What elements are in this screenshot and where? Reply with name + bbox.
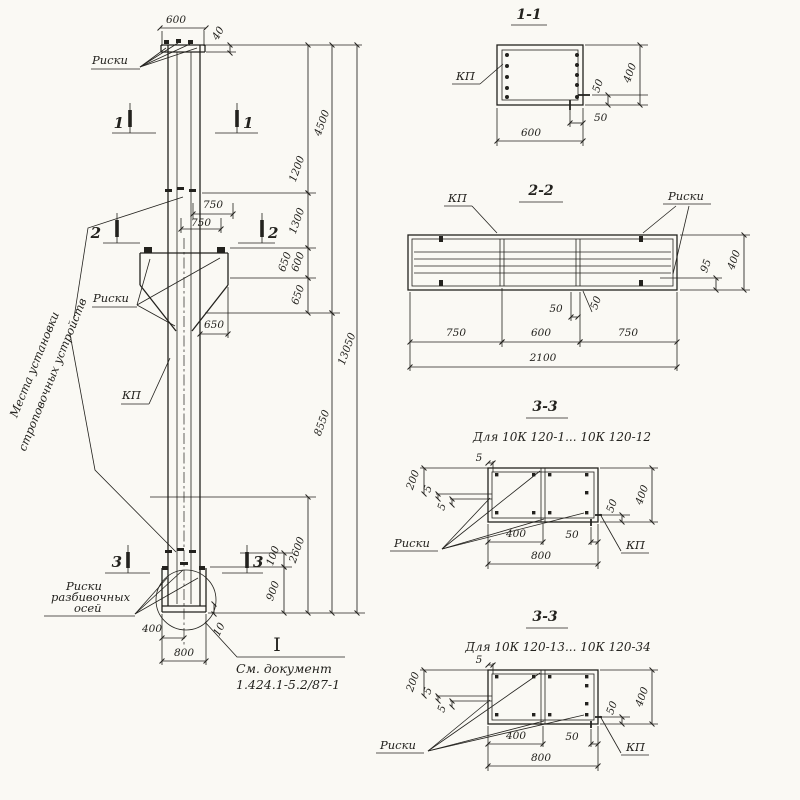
- riski-label: Риски: [379, 738, 416, 752]
- dim-off-b50: 50: [565, 731, 579, 743]
- section-1-1: 1-1 КП 50 400: [452, 7, 648, 146]
- axis-note-line3: осей: [74, 601, 102, 615]
- section-3-3b-title: 3-3: [532, 609, 558, 625]
- dim-5b: 5: [435, 501, 449, 512]
- dim-seg-650b: 650: [289, 283, 307, 306]
- dim-tip-900: 900: [264, 579, 282, 602]
- dim-seg-1200: 1200: [287, 154, 308, 184]
- section-1-1-outline: [497, 45, 583, 105]
- section-3-3-b: 3-3 Для 10К 120-13... 10К 120-34 5 200: [376, 609, 658, 771]
- dim-off-50: 50: [604, 699, 620, 716]
- dim-base-half: 400: [141, 623, 162, 635]
- dim-5-top: 5: [476, 654, 483, 666]
- kp-label: КП: [625, 740, 646, 754]
- section-3-3b-kp-note: КП: [600, 716, 649, 755]
- section-1-1-kp-note: КП: [452, 64, 503, 84]
- dim-width: 800: [531, 550, 551, 562]
- kp-label: КП: [121, 388, 142, 402]
- section-3-3a-riski-note: Риски: [390, 471, 584, 551]
- kp-note: КП: [121, 358, 170, 404]
- dim-width: 800: [531, 752, 551, 764]
- dim-off-b50: 50: [565, 529, 579, 541]
- dim-tip-100: 100: [264, 544, 282, 567]
- console-dim: 650: [200, 287, 228, 338]
- dim-5b: 5: [435, 703, 449, 714]
- dim-5-top: 5: [476, 452, 483, 464]
- section-2-2-kp-note: КП: [444, 191, 497, 233]
- dim-head-offset: 40: [209, 24, 227, 43]
- riski-label: Риски: [667, 189, 704, 203]
- dim-lower-total: 8550: [312, 408, 333, 438]
- section-3-3a-reinforcement: [436, 468, 602, 526]
- sling-dims: 750 750: [181, 199, 233, 233]
- section-2-2-reinforcement: [414, 236, 671, 286]
- dim-5a: 5: [421, 483, 435, 494]
- section-2-2-outline: [408, 235, 677, 290]
- column-outline: [161, 39, 205, 646]
- dim-sling-b: 750: [191, 217, 211, 229]
- section-mark-3-label: 3: [253, 553, 263, 571]
- dim-height: 400: [633, 483, 652, 507]
- drawing-sheet: 1 1 2 2 3 3: [0, 0, 800, 800]
- dim-off-50: 50: [604, 497, 620, 514]
- dim-console-reach: 650: [204, 319, 224, 331]
- dim-height: 400: [621, 61, 640, 85]
- dim-height: 400: [633, 685, 652, 709]
- section-3-3b-reinforcement: [436, 670, 602, 728]
- section-3-3a-dims: 5 200 5 5 50 400 400 50 800: [404, 452, 658, 569]
- kp-label: КП: [625, 538, 646, 552]
- dim-base-width: 800: [174, 647, 194, 659]
- dim-upper-total: 4500: [312, 108, 333, 138]
- section-3-3b-subtitle: Для 10К 120-13... 10К 120-34: [464, 640, 651, 654]
- dim-seg-750b: 750: [618, 327, 638, 339]
- dim-head-width: 600: [166, 14, 186, 26]
- section-3-3a-kp-note: КП: [600, 514, 649, 553]
- section-1-1-title: 1-1: [516, 7, 541, 23]
- dim-seg-1300: 1300: [287, 206, 308, 236]
- kp-label: КП: [455, 69, 476, 83]
- section-mark-1-label: 1: [114, 114, 124, 132]
- doc-reference: I См. документ 1.424.1-5.2/87-1: [205, 622, 345, 692]
- section-2-2-title: 2-2: [527, 183, 554, 199]
- dim-overall-length: 13050: [336, 331, 359, 367]
- section-3-3a-title: 3-3: [532, 399, 558, 415]
- dim-edge-95: 95: [698, 257, 714, 274]
- section-mark-1-label: 1: [243, 114, 253, 132]
- section-mark-1: 1 1: [112, 103, 258, 133]
- dim-off-b: 50: [588, 294, 604, 311]
- section-3-3b-dims: 5 200 5 5 50 400 400 50 800: [404, 654, 658, 771]
- kp-label: КП: [447, 191, 468, 205]
- section-1-1-rebar: [505, 53, 579, 99]
- base-plate: [156, 562, 216, 630]
- riski-top-label: Риски: [91, 53, 128, 67]
- dim-seg-600: 600: [531, 327, 551, 339]
- riski-label: Риски: [393, 536, 430, 550]
- dim-seg-600: 600: [289, 250, 307, 273]
- section-mark-3-label: 3: [112, 553, 122, 571]
- section-2-2: 2-2 КП Риски: [408, 183, 750, 371]
- dim-200: 200: [404, 468, 423, 492]
- engineering-drawing: 1 1 2 2 3 3: [0, 0, 800, 800]
- dim-height: 400: [725, 248, 744, 272]
- doc-note-line1: См. документ: [236, 661, 332, 676]
- sling-places-note: Места установки строповочных устройств: [6, 197, 183, 552]
- dim-off-a: 50: [549, 303, 563, 315]
- riski-top-note: Риски: [91, 43, 197, 69]
- section-3-3-a: 3-3 Для 10К 120-1... 10К 120-12 5 200: [390, 399, 658, 569]
- detail-roman-mark: I: [273, 634, 281, 656]
- dim-tip-sling: 2600: [287, 535, 308, 565]
- dim-sling-a: 750: [203, 199, 223, 211]
- right-dim-chains: 1200 1300 650 600 650 2600 100 900 4500 …: [264, 45, 359, 613]
- dim-5a: 5: [421, 685, 435, 696]
- section-1-1-dims: 50 400 50 600: [497, 45, 648, 146]
- riski-console-note: Риски: [92, 258, 220, 326]
- dim-width: 600: [521, 127, 541, 139]
- dim-half: 400: [505, 730, 526, 742]
- dim-off-v: 50: [590, 77, 606, 94]
- section-3-3a-subtitle: Для 10К 120-1... 10К 120-12: [472, 430, 651, 444]
- detail-circle: [156, 570, 216, 630]
- main-elevation-view: 1 1 2 2 3 3: [6, 14, 365, 692]
- dim-total: 2100: [529, 352, 557, 364]
- dim-off-h: 50: [594, 112, 608, 124]
- dim-200: 200: [404, 670, 423, 694]
- axis-marks-note: Риски разбивочных осей: [44, 570, 198, 616]
- dim-plate-thickness: 10: [211, 621, 228, 639]
- riski-console-label: Риски: [92, 291, 129, 305]
- doc-note-line2: 1.424.1-5.2/87-1: [236, 677, 340, 692]
- dim-seg-750a: 750: [446, 327, 466, 339]
- section-mark-2-label: 2: [267, 224, 278, 242]
